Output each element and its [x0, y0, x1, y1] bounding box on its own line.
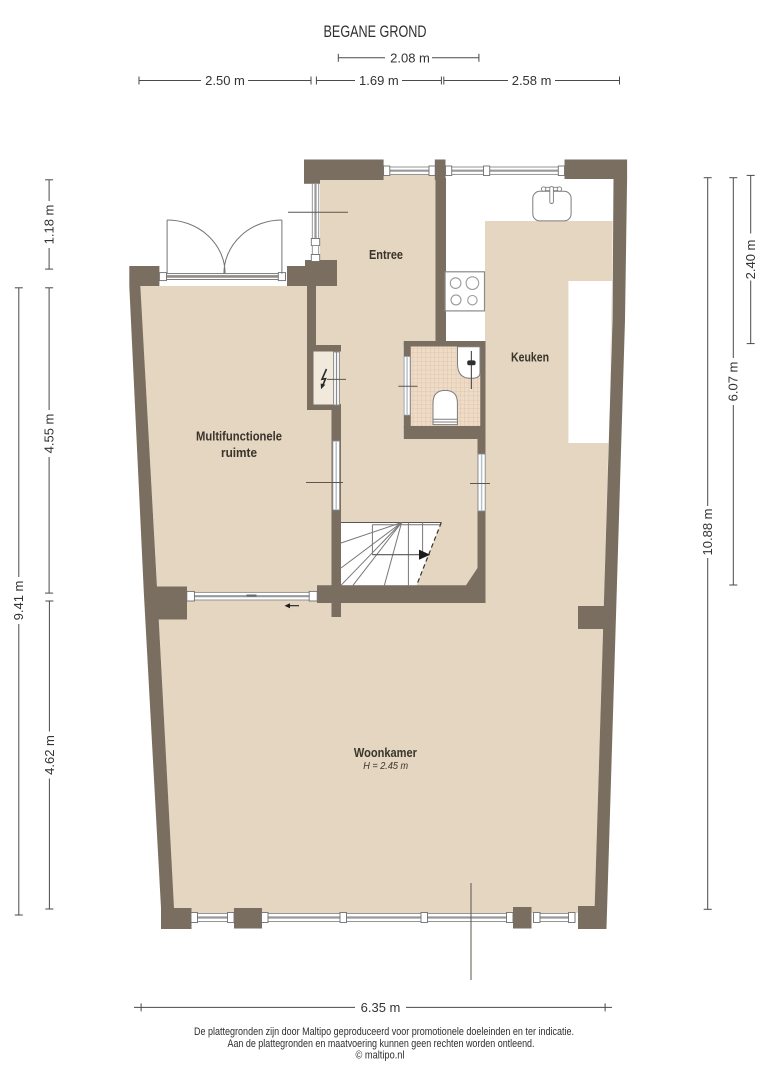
- svg-text:4.62 m: 4.62 m: [42, 735, 57, 775]
- svg-text:6.35 m: 6.35 m: [361, 1000, 401, 1015]
- svg-text:1.69 m: 1.69 m: [359, 73, 399, 88]
- svg-text:ruimte: ruimte: [221, 446, 257, 460]
- svg-text:6.07 m: 6.07 m: [726, 362, 741, 402]
- svg-text:2.50 m: 2.50 m: [205, 73, 245, 88]
- svg-text:2.58 m: 2.58 m: [512, 73, 552, 88]
- svg-text:© maltipo.nl: © maltipo.nl: [356, 1050, 405, 1062]
- svg-text:2.40 m: 2.40 m: [743, 240, 758, 280]
- svg-text:Woonkamer: Woonkamer: [354, 746, 417, 760]
- svg-text:Aan de plattegronden en maatvo: Aan de plattegronden en maatvoering kunn…: [228, 1038, 535, 1050]
- svg-text:H = 2.45 m: H = 2.45 m: [363, 761, 408, 772]
- svg-text:BEGANE GROND: BEGANE GROND: [324, 22, 427, 41]
- svg-text:Multifunctionele: Multifunctionele: [196, 429, 282, 443]
- svg-text:4.55 m: 4.55 m: [42, 414, 57, 454]
- svg-text:1.18 m: 1.18 m: [42, 205, 57, 245]
- svg-text:2.08 m: 2.08 m: [390, 51, 430, 66]
- svg-text:Keuken: Keuken: [511, 351, 549, 365]
- svg-text:Entree: Entree: [369, 248, 403, 262]
- svg-text:9.41 m: 9.41 m: [11, 581, 26, 621]
- svg-text:10.88 m: 10.88 m: [700, 509, 715, 556]
- svg-text:De plattegronden zijn door Mal: De plattegronden zijn door Maltipo gepro…: [194, 1026, 574, 1038]
